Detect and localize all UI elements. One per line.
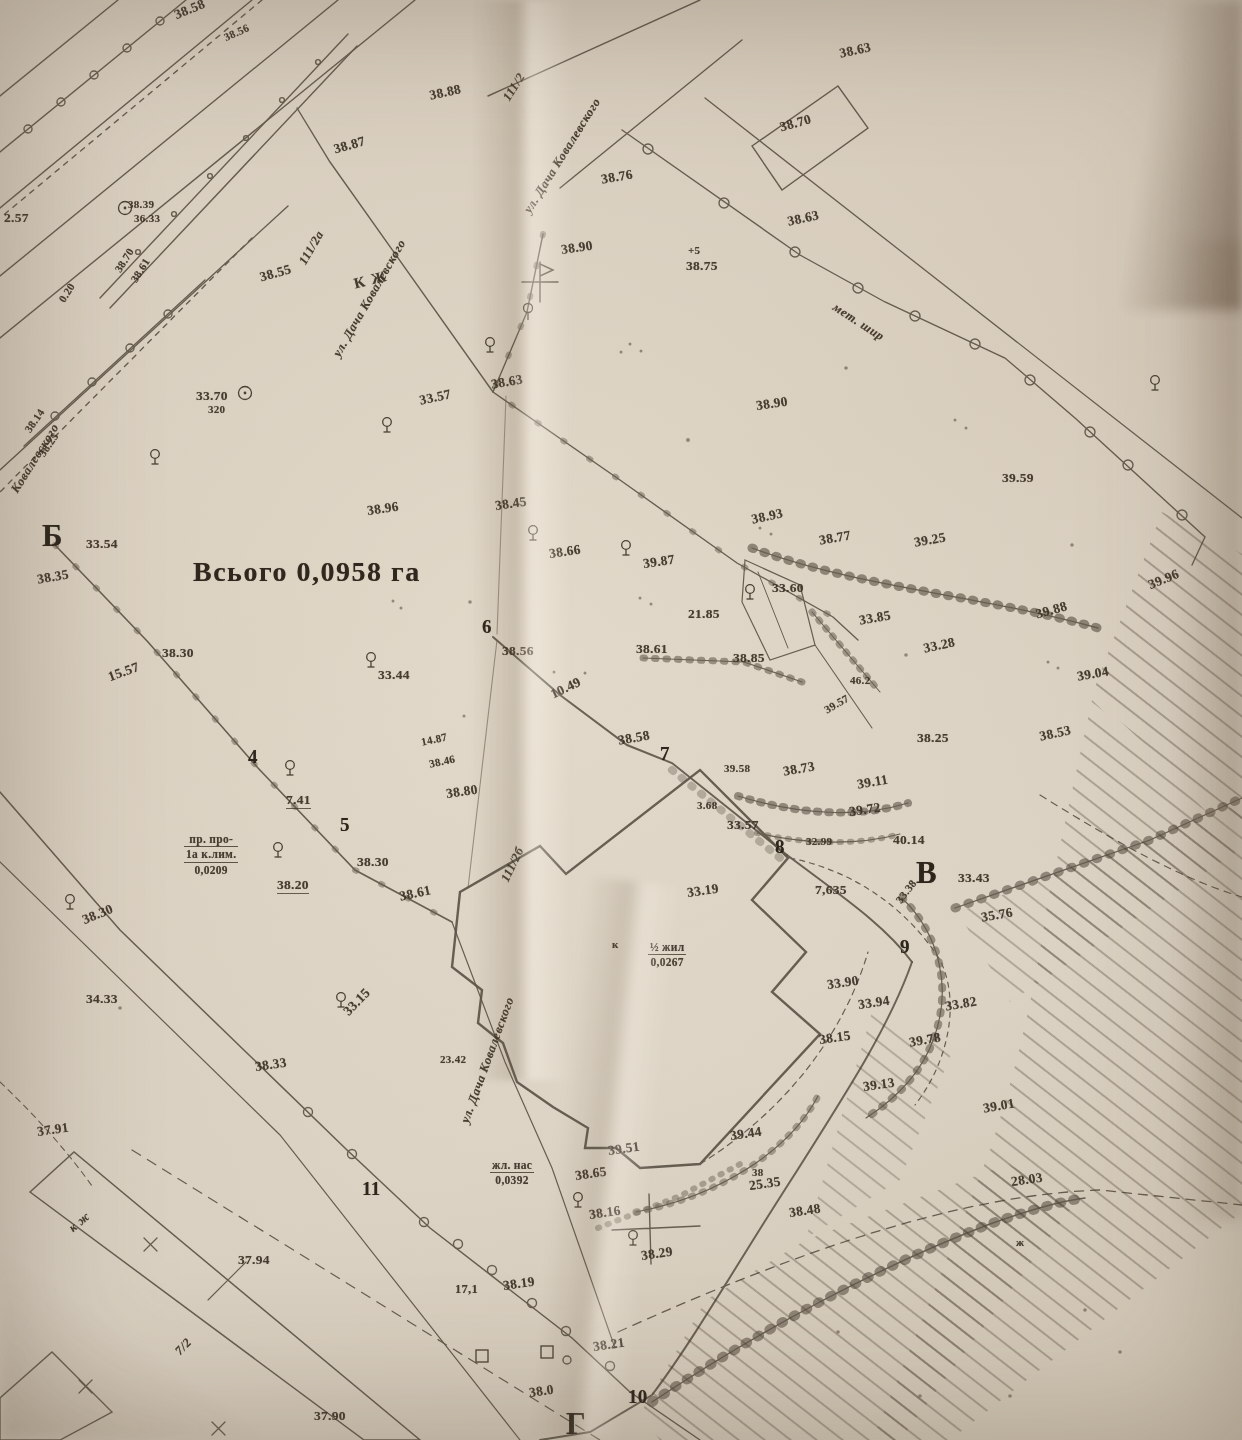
tree-icon bbox=[574, 1193, 583, 1207]
tree-icon bbox=[367, 653, 376, 667]
tree-icon bbox=[66, 895, 75, 909]
marker-square-icon bbox=[476, 1350, 488, 1362]
tree-icon bbox=[629, 1231, 638, 1245]
tree-icon bbox=[151, 450, 160, 464]
benchmark-icon bbox=[119, 202, 132, 215]
tree-icon bbox=[274, 843, 283, 857]
tree-icon bbox=[622, 541, 631, 555]
benchmark-icon bbox=[239, 387, 252, 400]
tree-icon bbox=[1151, 376, 1160, 390]
tree-icon bbox=[383, 418, 392, 432]
scanned-survey-map: Всього 0,0958 га 38.5838.5638.8738.88111… bbox=[0, 0, 1242, 1440]
tree-icon bbox=[337, 993, 346, 1007]
tree-icon bbox=[746, 585, 755, 599]
map-linework bbox=[0, 0, 1242, 1440]
tree-icon bbox=[486, 338, 495, 352]
tree-icon bbox=[286, 761, 295, 775]
marker-square-icon bbox=[541, 1346, 553, 1358]
tree-icon bbox=[529, 526, 538, 540]
